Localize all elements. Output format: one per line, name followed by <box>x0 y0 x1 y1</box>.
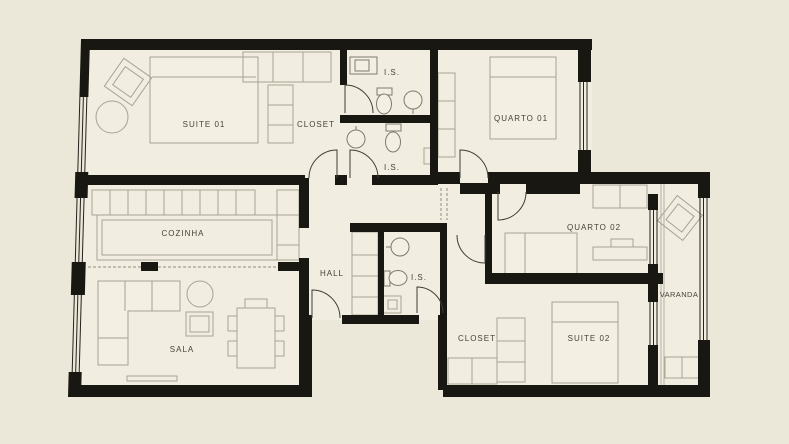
sink-icon <box>391 238 409 256</box>
floor-plan-page: SUITE 01 CLOSET I.S. I.S. QUARTO 01 COZI… <box>0 0 789 444</box>
room-label-closet-top: CLOSET <box>297 120 335 129</box>
room-label-is-center: I.S. <box>411 273 427 282</box>
sink-icon <box>347 130 365 148</box>
entry-recess <box>310 320 444 397</box>
room-label-varanda: VARANDA <box>660 290 699 299</box>
room-label-quarto02: QUARTO 02 <box>567 223 621 232</box>
room-label-sala: SALA <box>170 345 194 354</box>
room-label-closet-bottom: CLOSET <box>458 334 496 343</box>
sink-icon <box>404 91 422 109</box>
room-label-is-top: I.S. <box>384 68 400 77</box>
room-label-cozinha: COZINHA <box>162 229 205 238</box>
bed-quarto02 <box>505 233 577 274</box>
room-label-is-upper-mid: I.S. <box>384 163 400 172</box>
room-label-suite01: SUITE 01 <box>183 120 226 129</box>
bed-quarto01 <box>490 57 556 139</box>
room-label-suite02: SUITE 02 <box>568 334 611 343</box>
bed-suite01 <box>150 57 258 143</box>
floor-plan-canvas: SUITE 01 CLOSET I.S. I.S. QUARTO 01 COZI… <box>0 0 789 444</box>
room-label-quarto01: QUARTO 01 <box>494 114 548 123</box>
room-label-hall: HALL <box>320 269 344 278</box>
toilet-icon <box>386 124 401 131</box>
